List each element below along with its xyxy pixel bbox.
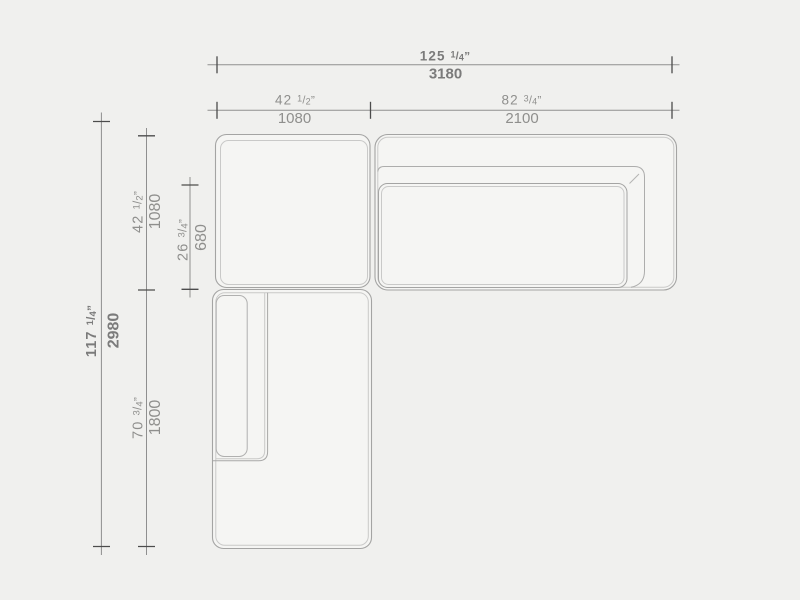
svg-text:117 1/4”: 117 1/4” <box>84 304 100 357</box>
svg-text:1080: 1080 <box>278 110 311 127</box>
svg-text:2100: 2100 <box>505 110 538 127</box>
svg-text:2980: 2980 <box>106 313 123 349</box>
svg-text:1800: 1800 <box>147 400 164 436</box>
svg-text:1080: 1080 <box>147 194 164 230</box>
svg-text:3180: 3180 <box>429 66 462 83</box>
svg-text:125 1/4”: 125 1/4” <box>420 49 472 64</box>
svg-text:680: 680 <box>193 224 210 251</box>
